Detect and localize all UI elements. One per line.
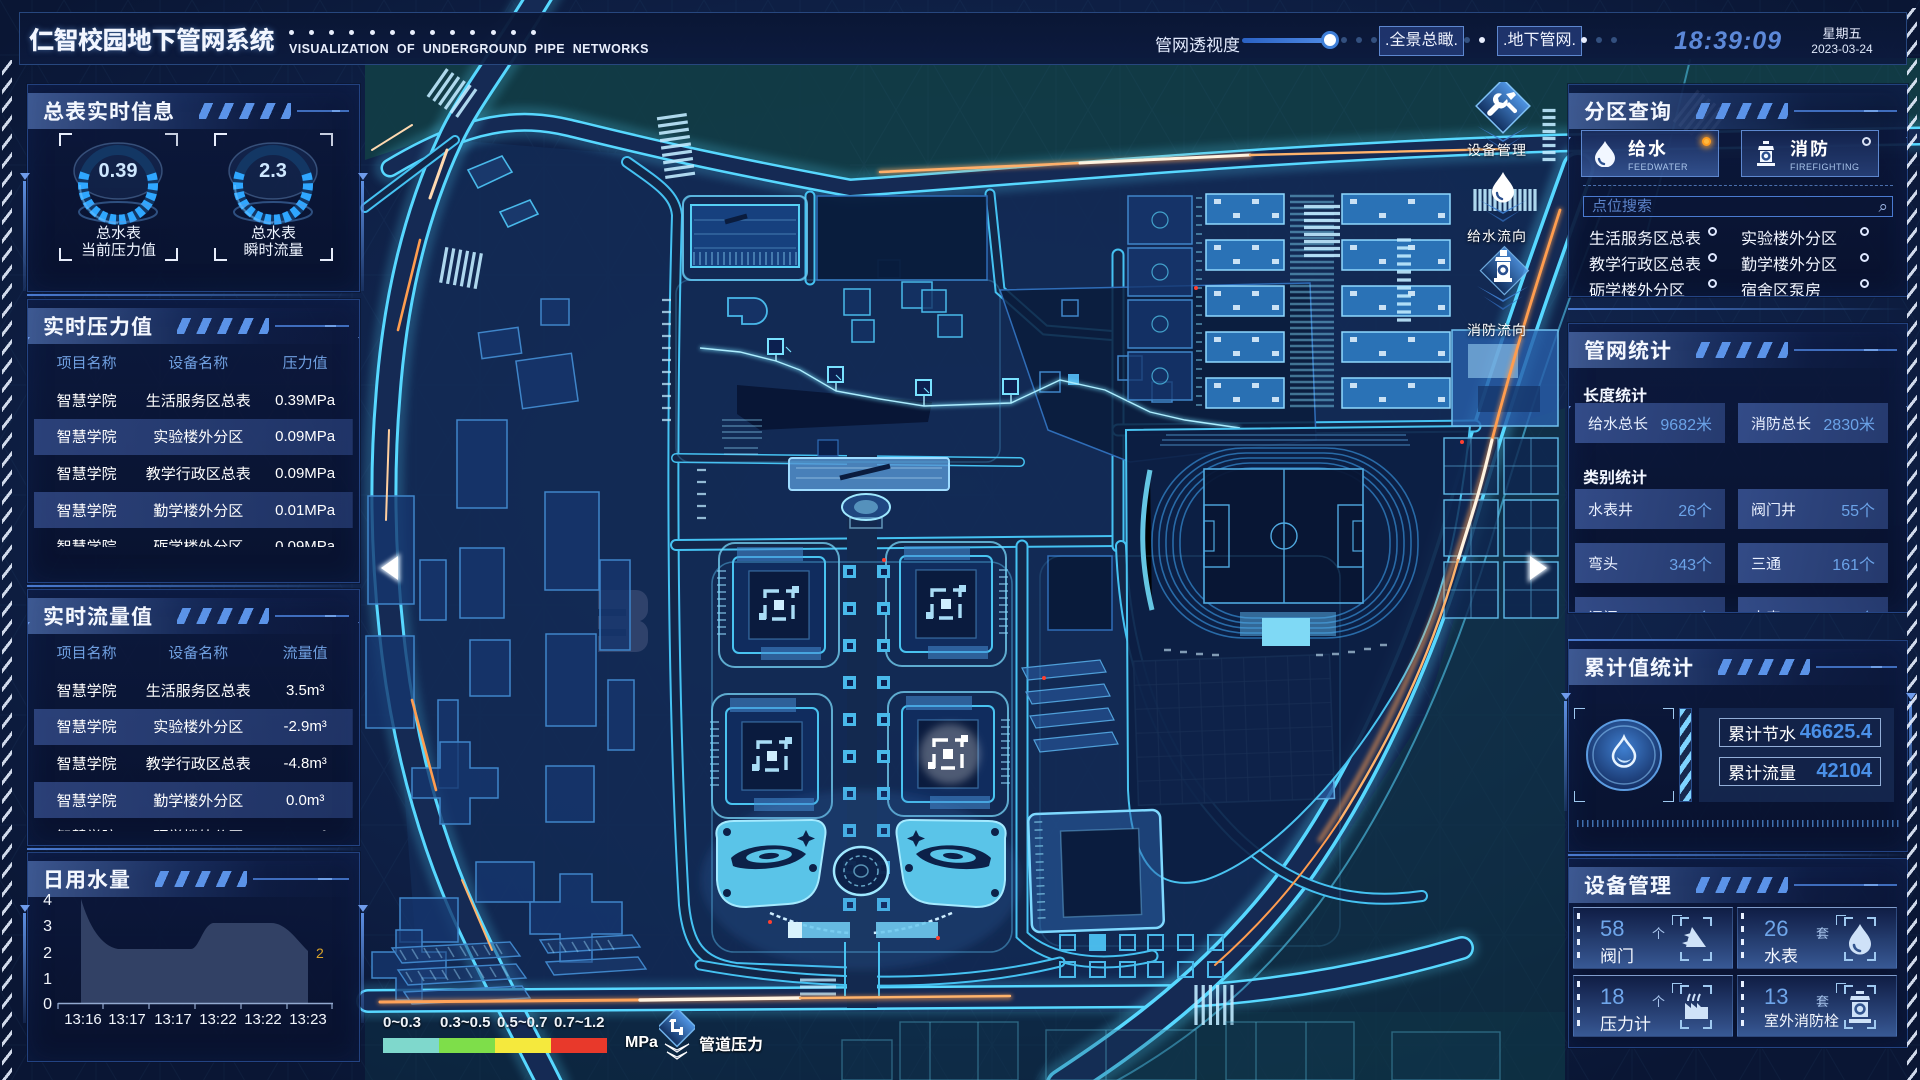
- svg-text:13:22: 13:22: [199, 1011, 237, 1028]
- svg-text:0.39: 0.39: [99, 160, 138, 182]
- svg-text:13:23: 13:23: [289, 1011, 327, 1028]
- svg-text:13:16: 13:16: [64, 1011, 102, 1028]
- svg-text:2.3: 2.3: [259, 160, 287, 182]
- svg-text:4: 4: [43, 892, 52, 909]
- svg-text:3: 3: [43, 918, 52, 935]
- svg-text:1: 1: [43, 971, 52, 988]
- svg-text:0: 0: [43, 996, 52, 1013]
- svg-text:2: 2: [43, 945, 52, 962]
- svg-text:13:22: 13:22: [244, 1011, 282, 1028]
- svg-text:13:17: 13:17: [108, 1011, 146, 1028]
- svg-text:13:17: 13:17: [154, 1011, 192, 1028]
- svg-text:2: 2: [316, 945, 324, 961]
